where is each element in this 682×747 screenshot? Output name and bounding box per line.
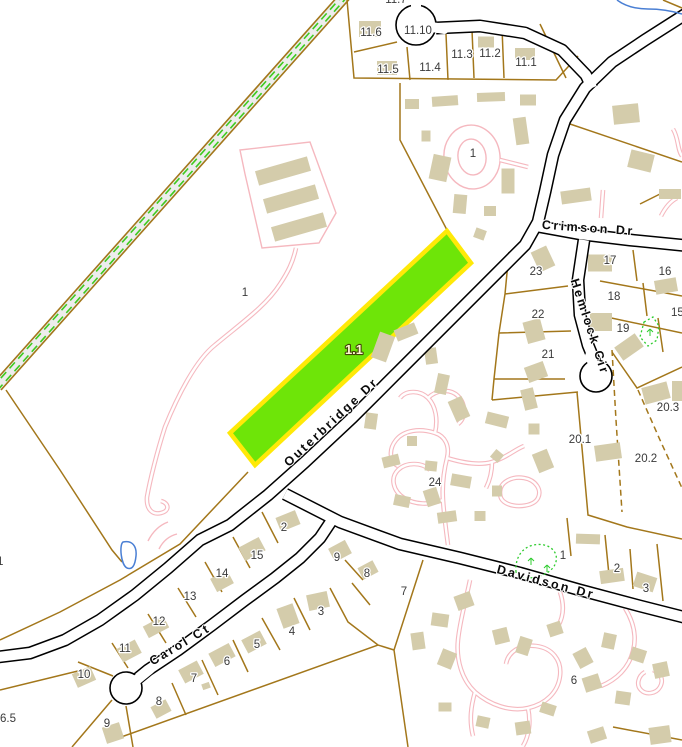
parcel-label: 15 <box>251 550 264 562</box>
parcel-label: 23 <box>530 266 543 278</box>
road-label-davidson-dr: Davidson Dr <box>495 562 596 602</box>
parcel-label: 21 <box>542 349 555 361</box>
parcel-label: 7 <box>191 673 197 685</box>
parcel-label: 13 <box>184 591 197 603</box>
parcel-label: 1 <box>470 148 476 160</box>
parcel-label: 11.1 <box>515 57 537 69</box>
parcel-label: 9 <box>104 718 110 730</box>
parcel-label: 2 <box>281 522 287 534</box>
parcel-label: 20.3 <box>657 402 679 414</box>
parcel-label: 1 <box>242 287 248 299</box>
parcel-label: 3 <box>318 606 324 618</box>
parcel-label: 20.1 <box>569 434 591 446</box>
parcel-label: 9 <box>334 552 340 564</box>
parcel-label: 10 <box>78 669 91 681</box>
parcel-label: 6 <box>571 675 577 687</box>
parcel-label: 15 <box>671 307 682 319</box>
parcel-label: 11.5 <box>377 64 399 76</box>
parcel-label: 20.2 <box>635 453 657 465</box>
parcel-label: 11.4 <box>419 62 441 74</box>
stream <box>617 0 682 14</box>
parcel-label: 24 <box>429 477 442 489</box>
parcel-label: 7 <box>401 586 407 598</box>
parcel-label: 11.7 <box>385 0 407 6</box>
parcel-label: 1 <box>0 556 3 568</box>
parcel-label: 8 <box>156 696 162 708</box>
parcel-label: 11 <box>119 643 131 655</box>
parcel-label: 18 <box>608 291 621 303</box>
parcel-label: 16 <box>659 266 672 278</box>
parcel-label: 11.2 <box>479 48 501 60</box>
parcel-label: 17 <box>604 255 617 267</box>
map-viewport[interactable]: 11.7 11.6 11.10 11.3 11.2 11.1 11.5 11.4… <box>0 0 682 747</box>
parcel-label: 12 <box>153 616 166 628</box>
parcel-label: 11.10 <box>404 25 432 37</box>
parcel-map-canvas[interactable]: 11.7 11.6 11.10 11.3 11.2 11.1 11.5 11.4… <box>0 0 682 747</box>
pond <box>121 542 136 569</box>
parcel-label: 3 <box>643 583 649 595</box>
parcel-label: 6.5 <box>0 713 16 725</box>
parcel-label: 2 <box>614 563 620 575</box>
parcel-label: 11.6 <box>360 27 382 39</box>
highlighted-parcel-label: 1.1 <box>345 342 363 357</box>
parcel-label: 22 <box>532 309 545 321</box>
parcel-label: 14 <box>216 568 229 580</box>
parcel-label: 1 <box>560 550 566 562</box>
parcel-label: 4 <box>289 626 296 638</box>
parcel-label: 19 <box>617 323 630 335</box>
parcel-label: 11.3 <box>451 49 473 61</box>
parcel-label: 5 <box>254 639 260 651</box>
parcel-label: 8 <box>364 568 370 580</box>
parcel-label: 6 <box>224 656 230 668</box>
